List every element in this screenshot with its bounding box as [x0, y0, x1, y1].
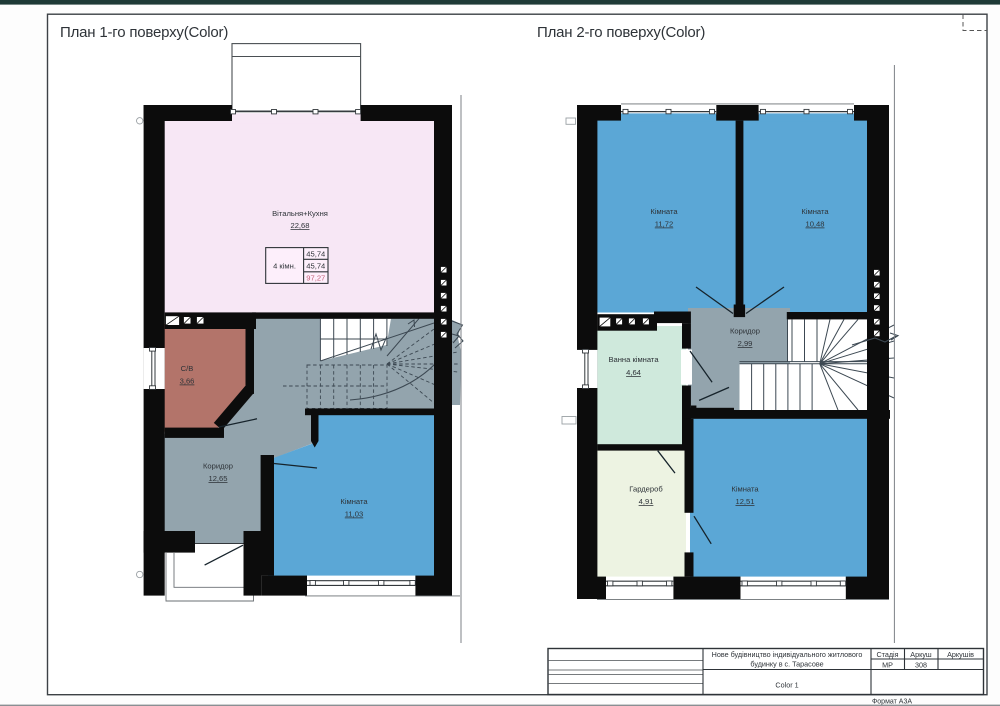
svg-text:Аркуш: Аркуш — [910, 650, 932, 659]
svg-text:Стадія: Стадія — [876, 650, 898, 659]
svg-text:Нове будівництво індивідуально: Нове будівництво індивідуального житлово… — [712, 650, 863, 659]
svg-text:Ванна кімната: Ванна кімната — [608, 355, 659, 364]
svg-text:Аркушів: Аркушів — [947, 650, 974, 659]
svg-text:Color 1: Color 1 — [775, 681, 798, 690]
svg-text:Кімната: Кімната — [801, 207, 829, 216]
svg-text:45,74: 45,74 — [306, 261, 325, 270]
svg-text:Кімната: Кімната — [731, 485, 759, 494]
svg-text:11,72: 11,72 — [655, 220, 673, 229]
svg-text:будинку в с. Тарасове: будинку в с. Тарасове — [750, 660, 823, 669]
svg-text:Коридор: Коридор — [730, 327, 760, 336]
svg-text:МР: МР — [882, 660, 893, 669]
svg-text:22,68: 22,68 — [290, 221, 309, 230]
svg-text:Коридор: Коридор — [203, 462, 233, 471]
svg-text:11,03: 11,03 — [345, 510, 363, 519]
svg-text:План 2-го поверху(Color): План 2-го поверху(Color) — [537, 24, 705, 41]
svg-text:План 1-го поверху(Color): План 1-го поверху(Color) — [60, 24, 228, 41]
svg-text:3,66: 3,66 — [180, 377, 195, 386]
svg-text:Кімната: Кімната — [340, 497, 368, 506]
svg-text:2,99: 2,99 — [738, 339, 753, 348]
svg-text:Кімната: Кімната — [650, 207, 678, 216]
svg-text:4,64: 4,64 — [626, 368, 641, 377]
svg-text:45,74: 45,74 — [306, 249, 325, 258]
svg-text:4 кімн.: 4 кімн. — [273, 261, 296, 270]
svg-text:12,51: 12,51 — [735, 497, 754, 506]
svg-text:10,48: 10,48 — [805, 220, 824, 229]
svg-text:12,65: 12,65 — [208, 474, 227, 483]
svg-text:308: 308 — [915, 660, 927, 669]
svg-text:97,27: 97,27 — [306, 274, 325, 283]
svg-text:4,91: 4,91 — [639, 497, 654, 506]
svg-text:Гардероб: Гардероб — [629, 485, 663, 494]
svg-text:С/В: С/В — [181, 364, 194, 373]
svg-text:Вітальня+Кухня: Вітальня+Кухня — [272, 209, 328, 218]
svg-text:Формат А3А: Формат А3А — [872, 699, 912, 706]
